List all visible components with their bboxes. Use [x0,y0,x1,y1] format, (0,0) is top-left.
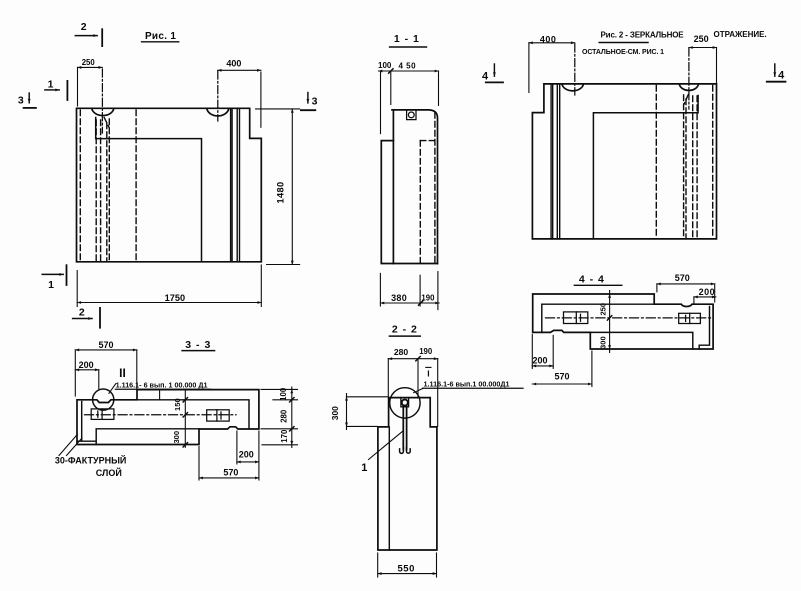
svg-text:3: 3 [312,96,318,108]
svg-text:Рис. 2 - ЗЕРКАЛЬНОЕ: Рис. 2 - ЗЕРКАЛЬНОЕ [601,30,685,39]
svg-text:4 - 4: 4 - 4 [579,273,605,285]
svg-text:Рис. 1: Рис. 1 [145,31,176,42]
svg-text:ОСТАЛЬНОЕ-СМ. РИС. 1: ОСТАЛЬНОЕ-СМ. РИС. 1 [582,49,664,56]
svg-text:250: 250 [82,58,96,67]
svg-text:570: 570 [223,468,238,478]
svg-text:200: 200 [699,287,716,297]
svg-text:3 - 3: 3 - 3 [185,339,211,351]
svg-text:1: 1 [48,78,54,90]
svg-text:ОТРАЖЕНИЕ.: ОТРАЖЕНИЕ. [714,30,767,39]
svg-text:570: 570 [554,372,569,382]
svg-text:1.116.1- 6 вып. 1 00.000 Д1: 1.116.1- 6 вып. 1 00.000 Д1 [116,381,208,390]
svg-text:1.116.1-6 вып.1 00.000Д1: 1.116.1-6 вып.1 00.000Д1 [424,380,510,389]
svg-text:1: 1 [361,462,367,474]
svg-text:2 - 2: 2 - 2 [392,324,418,336]
svg-text:550: 550 [398,564,415,575]
svg-text:СЛОЙ: СЛОЙ [96,467,122,478]
svg-text:100: 100 [279,387,288,401]
svg-text:200: 200 [239,450,254,460]
svg-text:I: I [427,368,429,378]
svg-text:170: 170 [280,429,289,443]
svg-text:250: 250 [694,34,709,44]
svg-text:4: 4 [482,70,489,82]
svg-text:1750: 1750 [165,293,185,303]
svg-text:200: 200 [79,360,94,370]
svg-text:570: 570 [98,340,113,350]
svg-text:1: 1 [48,279,54,291]
svg-text:400: 400 [540,35,557,45]
svg-text:3: 3 [18,94,24,106]
svg-text:100: 100 [378,61,392,70]
svg-text:1 - 1: 1 - 1 [394,33,420,45]
svg-text:1480: 1480 [276,181,286,203]
svg-text:380: 380 [391,293,407,303]
svg-text:4 50: 4 50 [399,61,417,70]
svg-text:190: 190 [421,294,435,303]
svg-text:280: 280 [394,347,409,357]
svg-text:II: II [119,366,126,380]
svg-text:150: 150 [173,398,182,411]
svg-text:4: 4 [778,70,785,82]
svg-text:280: 280 [279,409,288,423]
svg-text:2: 2 [79,306,85,318]
svg-text:400: 400 [226,59,241,69]
svg-text:300: 300 [599,336,608,349]
svg-text:570: 570 [675,273,690,283]
svg-text:30-ФАКТУРНЫЙ: 30-ФАКТУРНЫЙ [55,454,127,465]
svg-text:190: 190 [419,347,433,356]
svg-text:200: 200 [532,356,547,366]
svg-text:300: 300 [172,431,181,444]
svg-text:300: 300 [330,406,340,420]
svg-text:250: 250 [599,303,608,316]
svg-text:2: 2 [81,21,87,33]
